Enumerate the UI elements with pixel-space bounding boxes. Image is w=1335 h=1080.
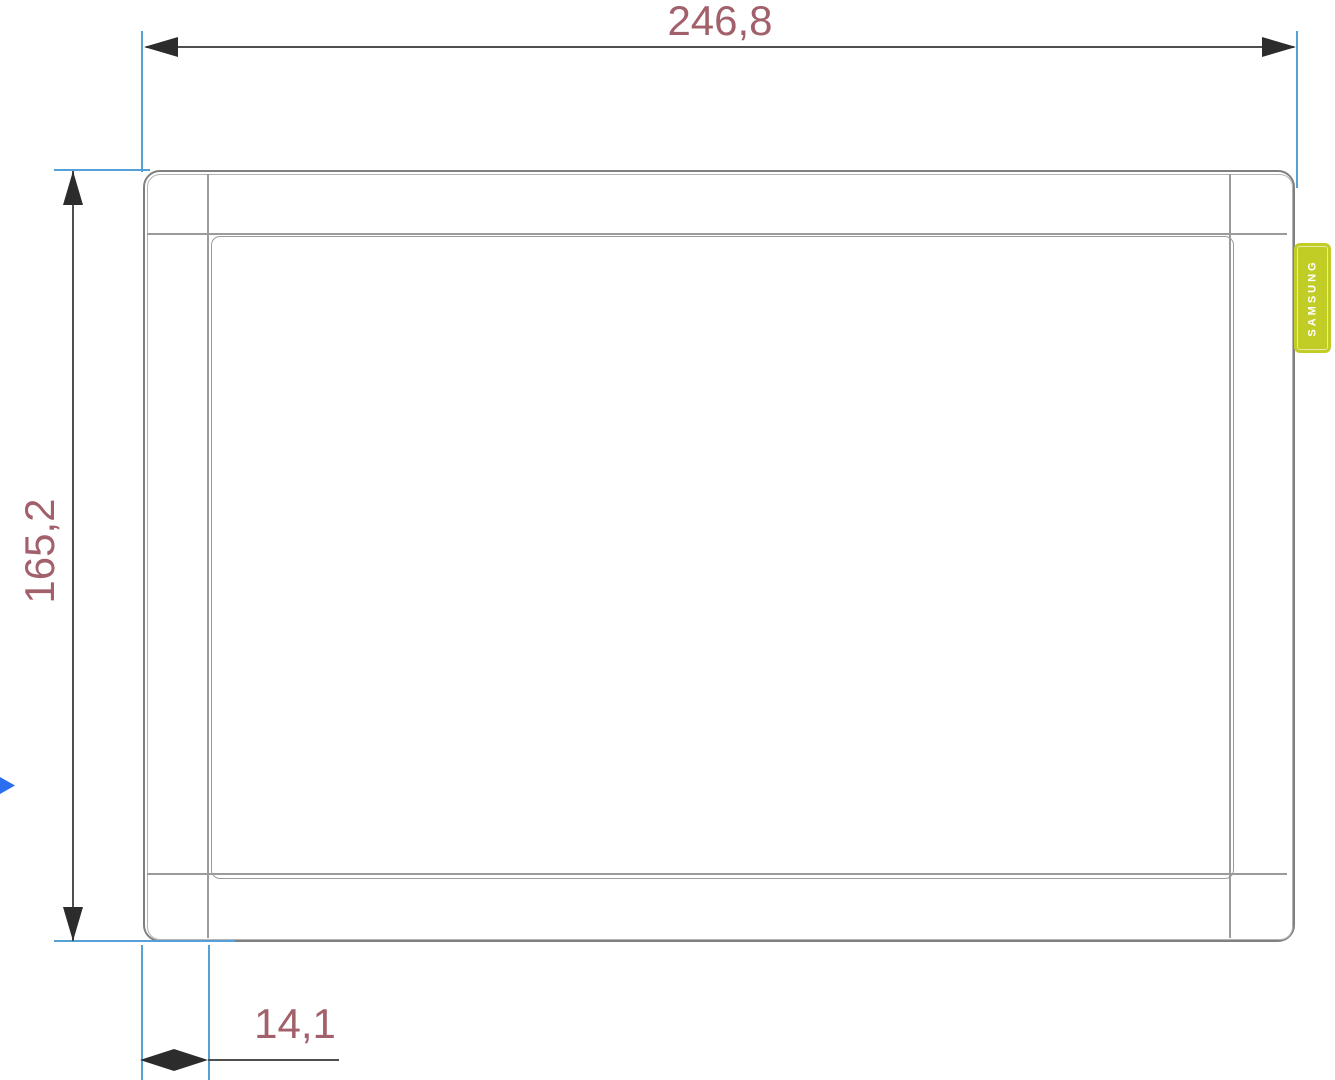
width-dimension-label: 246,8 xyxy=(560,0,880,42)
dimension-line-height xyxy=(72,171,74,941)
bezel-dimension-label: 14,1 xyxy=(230,1003,360,1045)
extension-line-width-left xyxy=(141,31,143,172)
arrowhead-width-right-icon xyxy=(1262,37,1296,57)
samsung-badge: SAMSUNG xyxy=(1294,243,1331,353)
screen-outline xyxy=(211,236,1234,879)
bezel-line-top xyxy=(147,233,1287,235)
arrowhead-bezel-diamond-icon xyxy=(140,1049,208,1071)
arrowhead-width-left-icon xyxy=(144,37,178,57)
bezel-line-left xyxy=(207,174,209,938)
extension-line-width-right xyxy=(1296,31,1298,188)
drawing-canvas: SAMSUNG 246,8 165,2 14,1 xyxy=(0,0,1335,1080)
dimension-leader-line-bezel xyxy=(208,1059,339,1061)
samsung-logo-text: SAMSUNG xyxy=(1307,259,1319,336)
dimension-line-width xyxy=(146,46,1294,48)
arrowhead-height-bottom-icon xyxy=(63,907,83,941)
cursor-arrow-icon xyxy=(0,777,15,794)
height-dimension-label: 165,2 xyxy=(19,441,61,661)
arrowhead-height-top-icon xyxy=(63,171,83,205)
